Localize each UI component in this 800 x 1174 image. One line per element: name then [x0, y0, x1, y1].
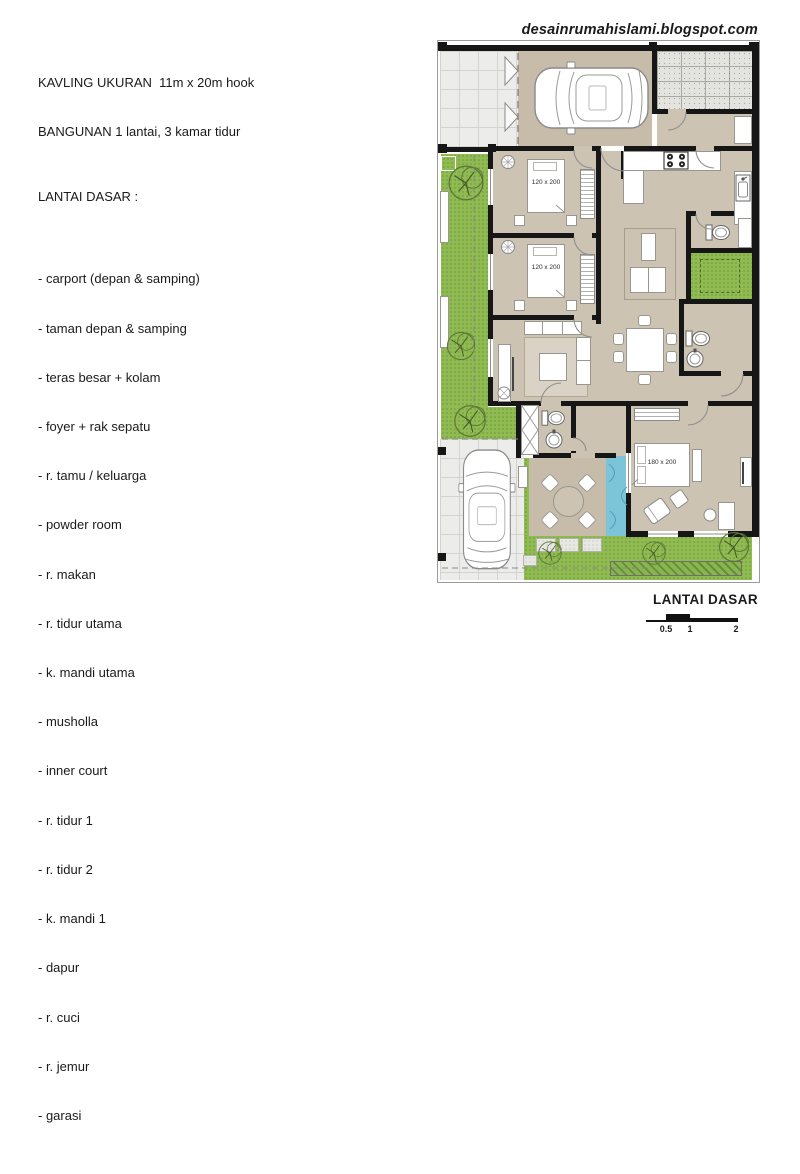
list-item: - inner court [38, 763, 368, 779]
list-item: - powder room [38, 517, 368, 533]
window [488, 254, 493, 290]
dining-chair [613, 351, 624, 363]
nightstand [566, 215, 577, 226]
bed-bench [692, 449, 702, 482]
dining-chair [666, 351, 677, 363]
door-opening [541, 401, 561, 406]
wall [652, 51, 657, 114]
kavling-line: KAVLING UKURAN 11m x 20m hook [38, 75, 368, 91]
tv-console-master [740, 457, 752, 487]
scale-segment [690, 618, 738, 622]
door-opening [696, 211, 711, 216]
plan-caption: LANTAI DASAR [598, 592, 758, 607]
list-item: - carport (depan & samping) [38, 271, 368, 287]
wardrobe [580, 169, 595, 219]
wall-post [438, 42, 447, 51]
wall [686, 253, 691, 299]
desk [718, 502, 735, 530]
room-list: - carport (depan & samping) - taman depa… [38, 238, 368, 1157]
planter-box [440, 191, 449, 243]
planter-box [518, 466, 528, 488]
tv-console [498, 344, 511, 402]
planter-box [441, 156, 456, 171]
room-carport-front [440, 439, 524, 580]
wall [686, 211, 691, 253]
sofa-divider [542, 321, 543, 335]
room-garage [518, 51, 652, 146]
stepping-stone [582, 538, 602, 552]
dining-table [626, 328, 664, 372]
planter-box [440, 296, 449, 348]
bed-size-label: 120 x 200 [527, 179, 565, 187]
door-opening [574, 146, 592, 151]
dining-chair [638, 374, 651, 385]
nightstand [514, 215, 525, 226]
kitchen-counter [734, 171, 752, 225]
window [694, 531, 728, 537]
scale-label: 1 [678, 624, 702, 634]
bed-size-label: 180 x 200 [634, 459, 690, 467]
wall [626, 531, 759, 537]
list-item: - k. mandi 1 [38, 911, 368, 927]
list-item: - teras besar + kolam [38, 370, 368, 386]
mat-divider [648, 267, 649, 293]
wall [752, 51, 759, 537]
list-item: - r. jemur [38, 1059, 368, 1075]
garden-front-band [441, 407, 521, 439]
list-item: - r. tamu / keluarga [38, 468, 368, 484]
page: { "header": { "site_url": "desainrumahis… [0, 0, 800, 649]
window [626, 453, 631, 493]
scale-bar: 0.5 1 2 [646, 612, 738, 638]
wall-post [438, 553, 446, 561]
laundry-counter [734, 116, 752, 144]
list-item: - foyer + rak sepatu [38, 419, 368, 435]
dining-chair [613, 333, 624, 345]
dining-chair [666, 333, 677, 345]
room-teras [528, 458, 609, 546]
door-opening [574, 315, 592, 320]
window [488, 169, 493, 205]
door-opening [688, 401, 708, 406]
door-opening [571, 453, 595, 458]
list-item: - r. makan [38, 567, 368, 583]
stepping-stone [523, 555, 537, 566]
list-item: - taman depan & samping [38, 321, 368, 337]
bangunan-line: BANGUNAN 1 lantai, 3 kamar tidur [38, 124, 368, 140]
nightstand [566, 300, 577, 311]
stepping-stone [559, 538, 579, 552]
room-carport-side [440, 51, 518, 147]
door-opening [668, 109, 686, 114]
floor-plan: 120 x 200 120 x 200 180 x 200 [437, 40, 760, 583]
inner-court-dashed-area [700, 259, 740, 293]
window [488, 339, 493, 377]
scale-label: 2 [724, 624, 748, 634]
section-title: LANTAI DASAR : [38, 189, 368, 205]
wardrobe [580, 254, 595, 304]
scale-segment [646, 620, 666, 622]
wall [438, 45, 759, 51]
wall-post [488, 144, 496, 152]
wall-post [438, 144, 447, 153]
kitchen-counter [623, 170, 644, 204]
pillow [533, 162, 557, 171]
list-item: - r. tidur 2 [38, 862, 368, 878]
hedge-planter [610, 561, 742, 576]
info-panel: KAVLING UKURAN 11m x 20m hook BANGUNAN 1… [38, 42, 368, 1174]
wardrobe-master [634, 408, 680, 421]
nightstand [514, 300, 525, 311]
list-item: - r. cuci [38, 1010, 368, 1026]
wall [679, 299, 752, 304]
wall [686, 248, 752, 253]
bath-shelf [738, 218, 752, 248]
window [648, 531, 678, 537]
list-item: - dapur [38, 960, 368, 976]
wall [679, 299, 684, 376]
list-item: - k. mandi utama [38, 665, 368, 681]
shoe-rack [521, 405, 539, 455]
door-opening [571, 438, 576, 451]
coffee-table [539, 353, 567, 381]
prayer-mat [641, 233, 656, 261]
door-opening [574, 233, 592, 238]
list-item: - r. tidur utama [38, 616, 368, 632]
dining-chair [638, 315, 651, 326]
pillow [533, 247, 557, 256]
sofa-divider [576, 360, 591, 361]
list-item: - r. tidur 1 [38, 813, 368, 829]
pillow [637, 466, 646, 484]
scale-segment [666, 614, 690, 622]
bed-size-label: 120 x 200 [527, 264, 565, 272]
sofa-three-seat [524, 321, 582, 335]
sofa-divider [562, 321, 563, 335]
wall-post [749, 42, 759, 51]
wall-post [649, 42, 657, 51]
scale-label: 0.5 [654, 624, 678, 634]
site-url: desainrumahislami.blogspot.com [437, 22, 758, 38]
stepping-stone [536, 538, 556, 552]
sofa-two-seat [576, 337, 591, 385]
list-item: - musholla [38, 714, 368, 730]
room-jemur-stone-yard [657, 51, 752, 109]
kitchen-counter [623, 151, 721, 171]
list-item: - garasi [38, 1108, 368, 1124]
wall-post [438, 447, 446, 455]
door-opening [721, 371, 743, 376]
